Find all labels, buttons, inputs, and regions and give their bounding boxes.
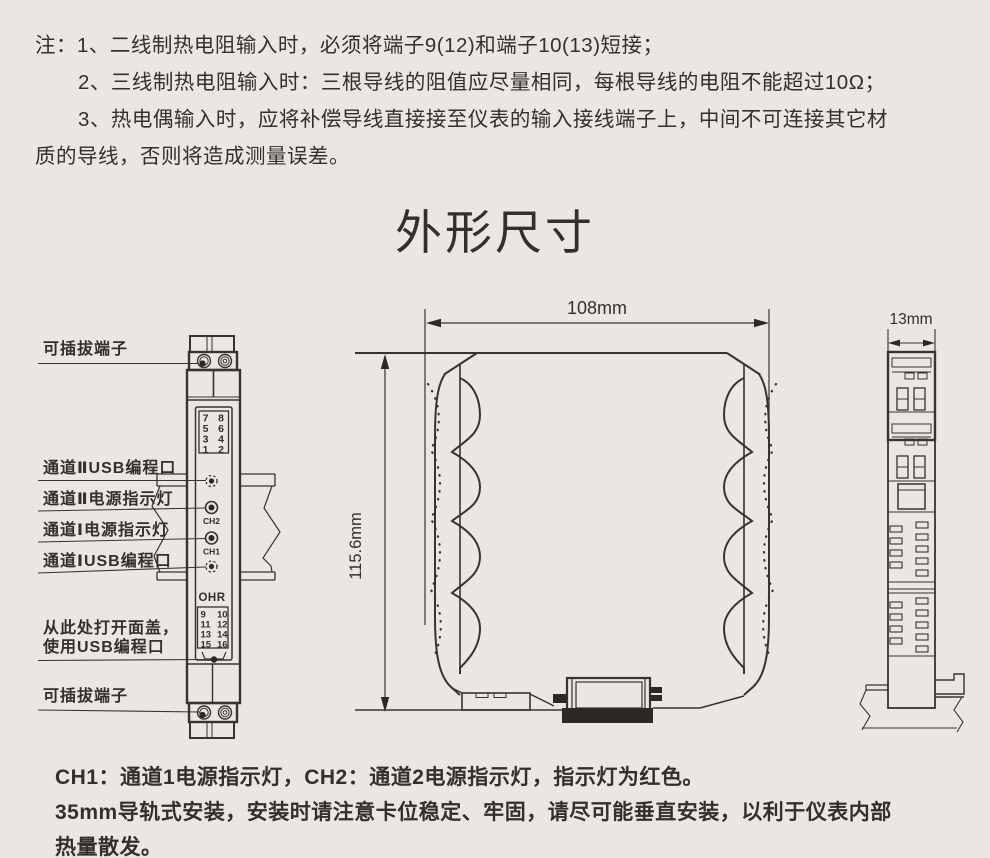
note-line-4: 质的导线，否则将造成测量误差。 — [35, 138, 960, 175]
brand-logo: OHR — [198, 592, 225, 604]
svg-text:16: 16 — [217, 640, 228, 651]
led-ch1 — [206, 532, 218, 544]
footer-line-3: 热量散发。 — [55, 830, 965, 858]
terminal-screw-top-left — [198, 355, 211, 368]
left-fin-wall — [428, 364, 480, 695]
footer-line-2: 35mm导轨式安装，安装时请注意卡位稳定、牢固，请尽可能垂直安装，以利于仪表内部 — [55, 795, 965, 830]
led-ch2 — [206, 502, 218, 514]
terminal-screw-top-right — [219, 355, 232, 368]
right-fin-wall — [724, 364, 776, 695]
svg-text:1: 1 — [203, 444, 209, 456]
page-title: 外形尺寸 — [0, 194, 990, 263]
label-open-cover-line1: 从此处打开面盖， — [43, 619, 179, 638]
note-line-3: 3、热电偶输入时，应将补偿导线直接接至仪表的输入接线端子上，中间不可连接其它材 — [35, 101, 960, 138]
svg-text:15: 15 — [201, 640, 212, 651]
module-front: 78 56 34 12 CH2 CH1 — [187, 336, 240, 738]
terminal-screw-bottom-left — [198, 706, 211, 719]
height-dimension: 115.6mm — [347, 354, 389, 712]
label-open-cover: 从此处打开面盖， 使用USB编程口 — [43, 619, 179, 657]
label-pluggable-terminal-top: 可插拔端子 — [43, 340, 128, 359]
width-dimension: 108mm — [425, 298, 769, 625]
footer-line-1: CH1：通道1电源指示灯，CH2：通道2电源指示灯，指示灯为红色。 — [55, 760, 965, 795]
footer-section: CH1：通道1电源指示灯，CH2：通道2电源指示灯，指示灯为红色。 35mm导轨… — [55, 760, 965, 858]
label-open-cover-line2: 使用USB编程口 — [43, 638, 179, 657]
width-dim-text: 108mm — [567, 298, 627, 318]
label-pluggable-terminal-bottom: 可插拔端子 — [43, 687, 128, 706]
usb-port-ch1-icon — [206, 561, 217, 572]
terminal-screw-bottom-right — [219, 706, 232, 719]
terminal-numbers-bottom: 910 1112 1314 1516 — [201, 610, 229, 651]
label-ch2-power-led: 通道Ⅱ电源指示灯 — [43, 490, 174, 509]
terminal-numbers-top: 78 56 34 12 — [203, 413, 225, 457]
height-dim-text: 115.6mm — [347, 512, 365, 580]
notes-section: 注：1、二线制热电阻输入时，必须将端子9(12)和端子10(13)短接； 2、三… — [35, 27, 960, 175]
manual-page: 注：1、二线制热电阻输入时，必须将端子9(12)和端子10(13)短接； 2、三… — [0, 0, 990, 858]
side-body — [888, 352, 935, 708]
label-ch1-power-led: 通道Ⅰ电源指示灯 — [43, 521, 169, 540]
note-line-2: 2、三线制热电阻输入时：三根导线的阻值应尽量相同，每根导线的电阻不能超过10Ω； — [35, 64, 960, 101]
depth-dim-text: 13mm — [889, 311, 932, 328]
led-ch2-label: CH2 — [203, 516, 220, 526]
side-view-figure: 13mm — [850, 298, 990, 753]
vent-slots-lower — [890, 598, 928, 652]
cover-notch — [202, 652, 226, 663]
note-line-1: 注：1、二线制热电阻输入时，必须将端子9(12)和端子10(13)短接； — [35, 27, 960, 64]
svg-text:2: 2 — [218, 444, 224, 456]
profile-view-figure: 108mm 115.6mm — [348, 282, 800, 747]
label-ch1-usb-port: 通道ⅠUSB编程口 — [43, 552, 172, 571]
led-ch1-label: CH1 — [203, 547, 220, 557]
din-rail-clip — [355, 678, 744, 723]
label-ch2-usb-port: 通道ⅡUSB编程口 — [43, 459, 176, 478]
usb-cover — [898, 484, 925, 509]
usb-port-ch2-icon — [206, 476, 217, 487]
vent-slots-upper — [890, 522, 928, 576]
rail-cross-section — [860, 674, 964, 732]
